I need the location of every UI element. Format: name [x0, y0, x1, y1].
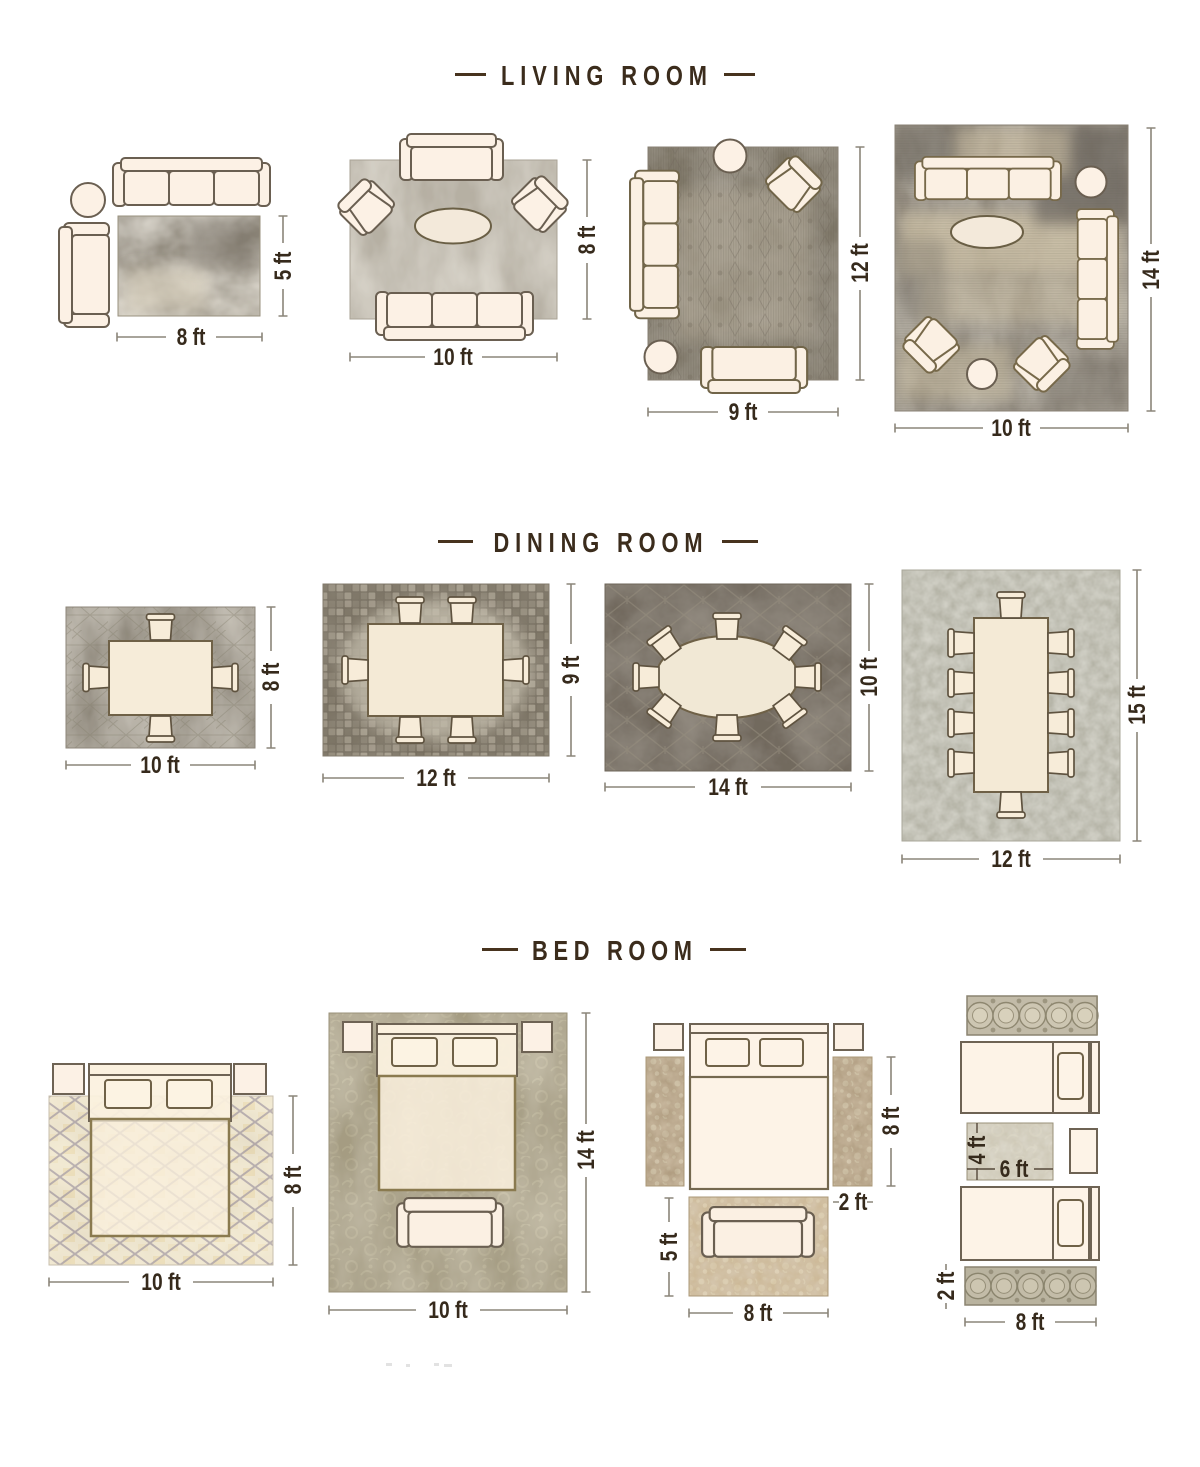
svg-text:12 ft: 12 ft [416, 764, 455, 792]
svg-text:4 ft: 4 ft [963, 1136, 991, 1165]
svg-text:10 ft: 10 ft [428, 1296, 467, 1324]
svg-text:8 ft: 8 ft [744, 1299, 773, 1327]
svg-text:9 ft: 9 ft [557, 656, 585, 685]
svg-text:8 ft: 8 ft [877, 1107, 905, 1136]
svg-text:12 ft: 12 ft [846, 243, 874, 282]
svg-text:5 ft: 5 ft [655, 1233, 683, 1262]
svg-text:8 ft: 8 ft [1016, 1308, 1045, 1336]
svg-text:5 ft: 5 ft [269, 252, 297, 281]
svg-text:10 ft: 10 ft [991, 414, 1030, 442]
svg-text:10 ft: 10 ft [433, 343, 472, 371]
svg-text:8 ft: 8 ft [279, 1166, 307, 1195]
svg-text:10 ft: 10 ft [140, 751, 179, 779]
svg-text:10 ft: 10 ft [141, 1268, 180, 1296]
svg-text:14 ft: 14 ft [572, 1130, 600, 1169]
svg-text:2 ft: 2 ft [932, 1272, 960, 1301]
svg-text:6 ft: 6 ft [1000, 1155, 1029, 1183]
svg-text:15 ft: 15 ft [1123, 685, 1151, 724]
svg-text:BED ROOM: BED ROOM [532, 935, 692, 966]
svg-text:8 ft: 8 ft [177, 323, 206, 351]
svg-text:2 ft: 2 ft [839, 1188, 868, 1216]
svg-text:14 ft: 14 ft [1137, 250, 1165, 289]
svg-text:8 ft: 8 ft [573, 226, 601, 255]
svg-text:8 ft: 8 ft [257, 663, 285, 692]
svg-text:10 ft: 10 ft [855, 657, 883, 696]
svg-text:12 ft: 12 ft [991, 845, 1030, 873]
svg-text:14 ft: 14 ft [708, 773, 747, 801]
svg-text:9 ft: 9 ft [729, 398, 758, 426]
